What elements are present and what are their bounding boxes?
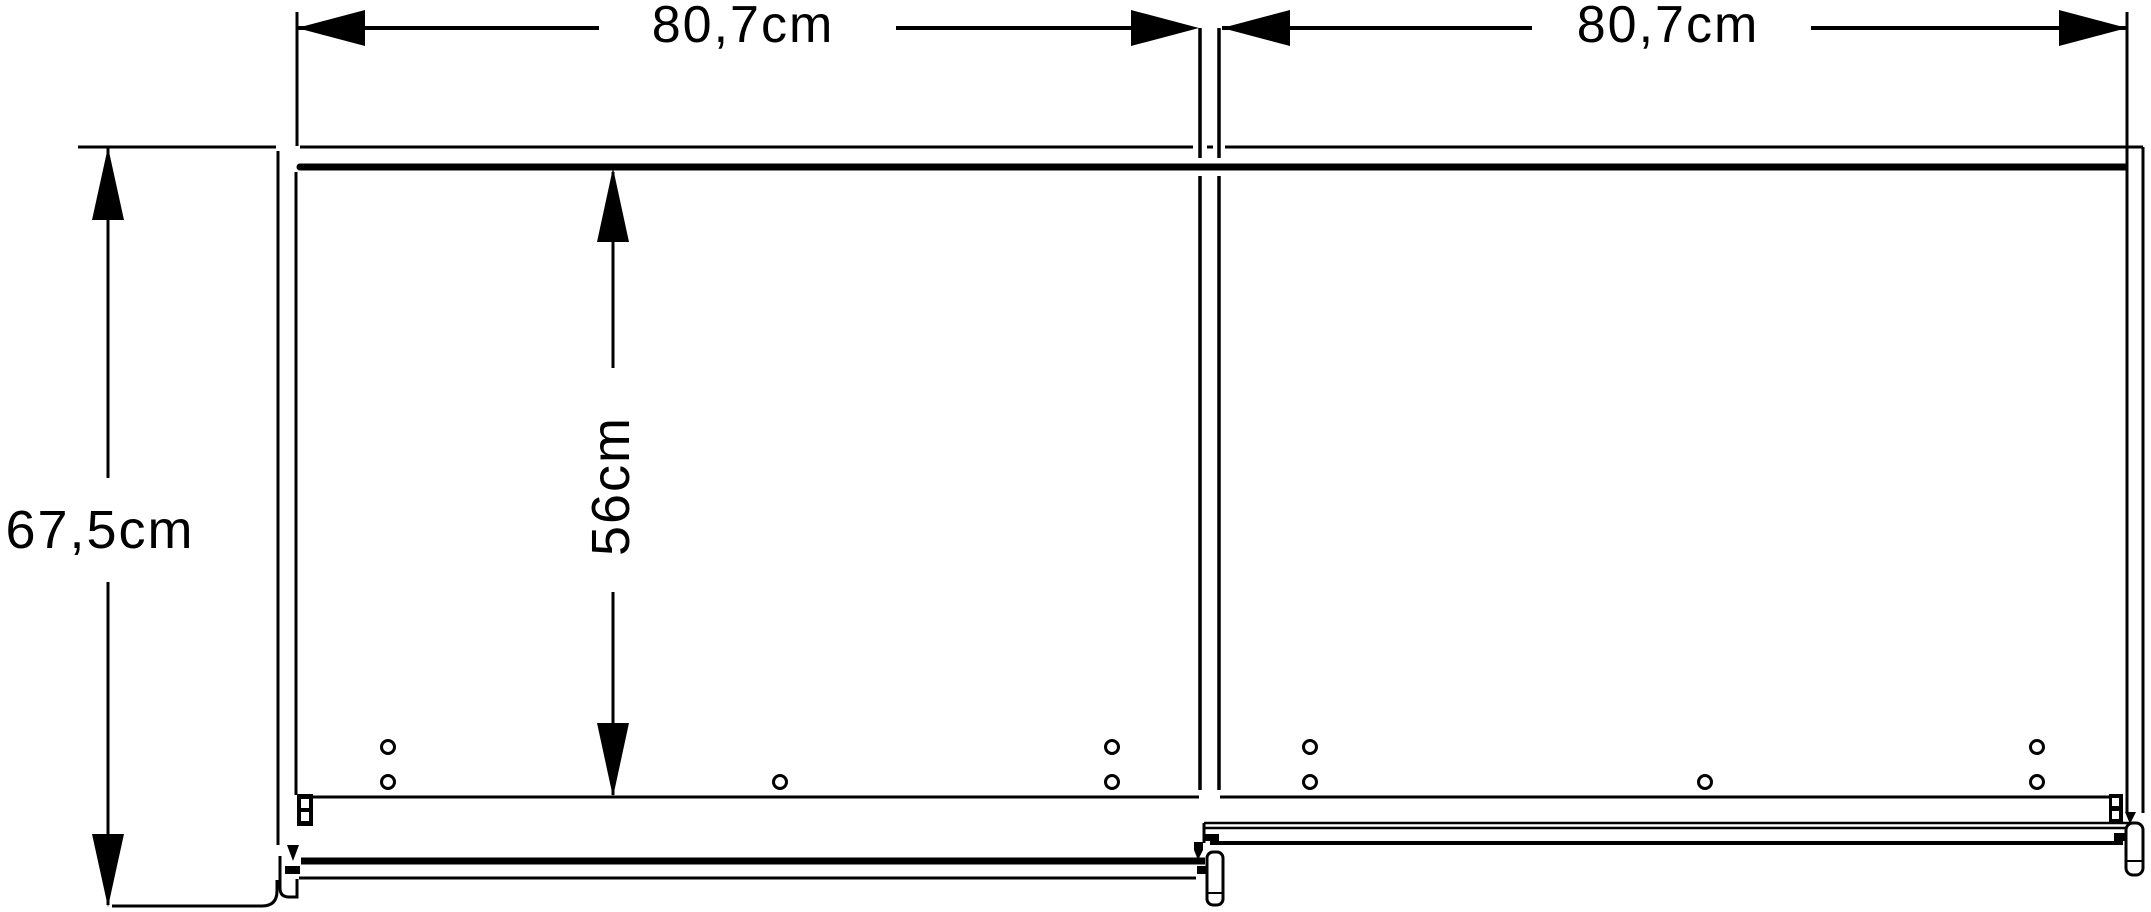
- drill-hole: [2031, 741, 2044, 754]
- technical-drawing-page: 80,7cm 80,7cm 67,5cm 56cm: [0, 0, 2151, 912]
- drill-hole: [2031, 776, 2044, 789]
- bracket-hole: [301, 812, 309, 821]
- drill-hole: [774, 776, 787, 789]
- arrow-up-icon: [92, 147, 124, 220]
- drill-holes: [382, 741, 2044, 789]
- wardrobe-plan-section-drawing: 80,7cm 80,7cm 67,5cm 56cm: [0, 0, 2151, 912]
- arrow-down-icon: [92, 834, 124, 907]
- drill-hole: [1106, 741, 1119, 754]
- dimension-depth-interior: 56cm: [581, 168, 641, 797]
- roller-housing-right: [2126, 823, 2143, 875]
- guide-pin-center-head: [1194, 842, 1203, 850]
- cabinet-back-panel: [300, 147, 2143, 167]
- dim-label-depth-interior: 56cm: [581, 416, 641, 556]
- side-panel-right: [2127, 147, 2143, 813]
- arrow-right-icon: [1131, 10, 1199, 46]
- dimension-top-right: 80,7cm: [1222, 0, 2127, 146]
- door-left: [280, 856, 1210, 897]
- dim-label-depth-total: 67,5cm: [5, 500, 194, 560]
- extension-line-bottom: [112, 880, 277, 906]
- drill-hole: [1699, 776, 1712, 789]
- drill-hole: [382, 776, 395, 789]
- door-back-face: [1204, 823, 2131, 828]
- roller-housing-center: [1207, 852, 1223, 905]
- drill-hole: [382, 741, 395, 754]
- floor-guide-left: [280, 856, 297, 897]
- side-panel-left: [278, 151, 296, 845]
- dimension-depth-total: 67,5cm: [5, 147, 277, 907]
- drill-hole: [1304, 741, 1317, 754]
- arrow-left-icon: [1222, 10, 1290, 46]
- roller-tab-left: [1205, 834, 1219, 841]
- dim-label-width-left: 80,7cm: [652, 0, 835, 54]
- drill-hole: [1304, 776, 1317, 789]
- dim-label-width-right: 80,7cm: [1577, 0, 1760, 54]
- dimension-top-left: 80,7cm: [297, 0, 1199, 146]
- arrow-down-icon: [597, 723, 629, 797]
- bracket-hole: [2112, 811, 2119, 819]
- bracket-hole: [301, 799, 309, 808]
- arrow-left-icon: [297, 10, 365, 46]
- door-right: [1204, 823, 2143, 905]
- mounting-bracket-left: [297, 794, 313, 826]
- arrow-right-icon: [2059, 10, 2127, 46]
- guide-tab-left: [285, 866, 300, 874]
- center-divider: [1200, 28, 1219, 790]
- arrow-up-icon: [597, 168, 629, 242]
- guide-pin-left: [287, 845, 299, 861]
- bracket-hole: [2112, 798, 2119, 806]
- drill-hole: [1106, 776, 1119, 789]
